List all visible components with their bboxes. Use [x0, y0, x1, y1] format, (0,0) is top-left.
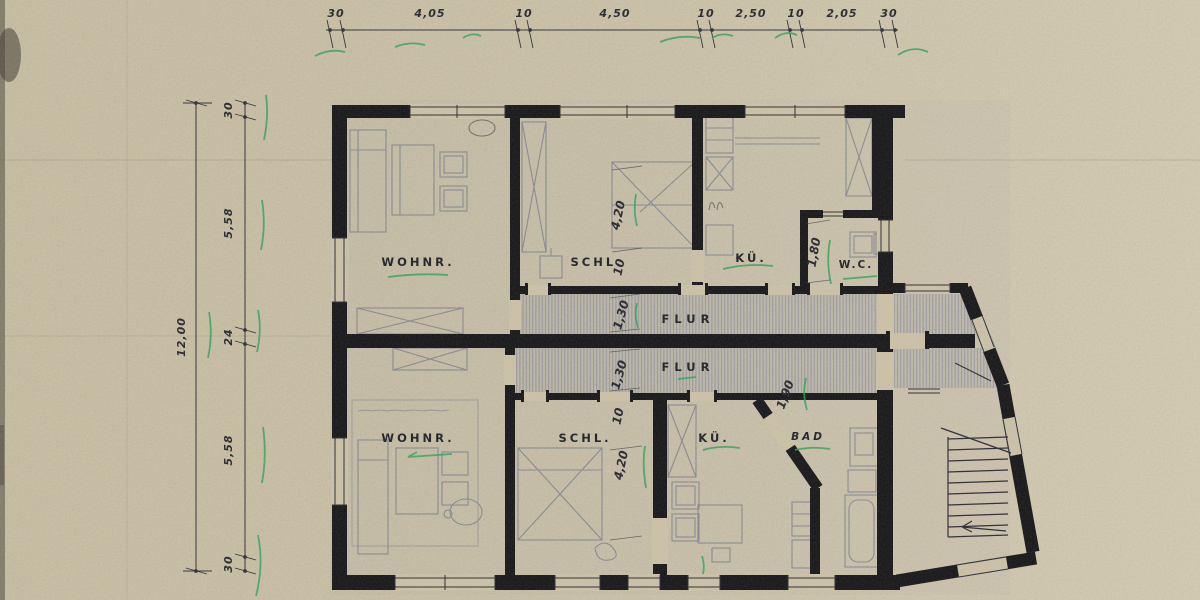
- paper-grain-overlay: [0, 0, 1200, 600]
- floor-plan-scan: 30 4,05 10 4,50 10 2,50 10 2,05 30 30 5,…: [0, 0, 1200, 600]
- floor-plan-drawing: 30 4,05 10 4,50 10 2,50 10 2,05 30 30 5,…: [0, 0, 1200, 600]
